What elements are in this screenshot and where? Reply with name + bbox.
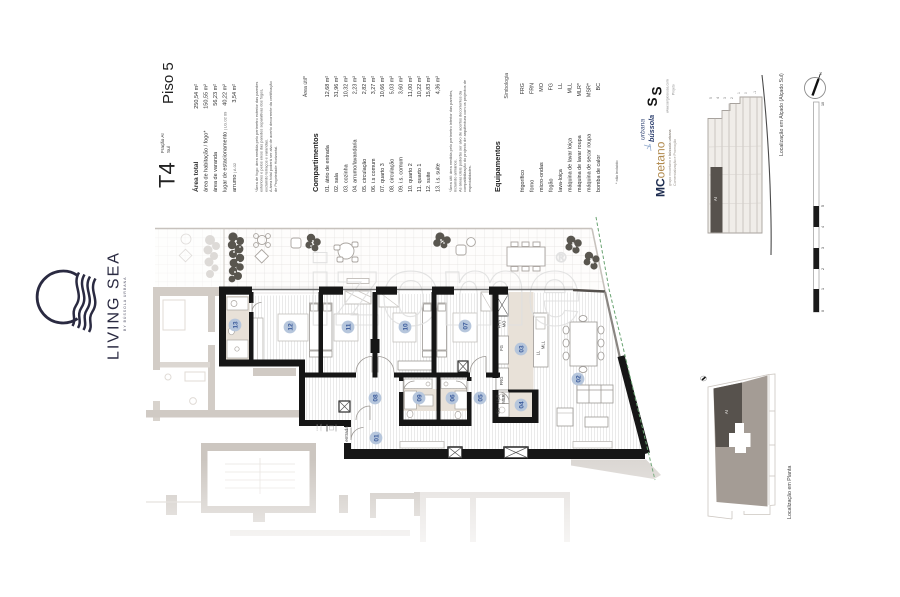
svg-text:especialidades.: especialidades. (467, 165, 472, 192)
svg-text:Projeto: Projeto (672, 84, 676, 95)
svg-text:08: 08 (372, 394, 379, 402)
svg-text:MSR: MSR (501, 394, 506, 403)
svg-text:FRG: FRG (520, 83, 526, 94)
svg-text:3,27 m²: 3,27 m² (371, 76, 377, 94)
svg-text:3,54 m²: 3,54 m² (232, 84, 238, 103)
svg-text:2: 2 (730, 97, 734, 99)
svg-text:FG: FG (549, 83, 555, 91)
svg-text:1: 1 (737, 92, 741, 94)
svg-text:2,82 m²: 2,82 m² (362, 76, 368, 94)
svg-text:31,96 m²: 31,96 m² (334, 76, 340, 97)
svg-text:área de varanda: área de varanda (213, 151, 219, 192)
svg-text:56,23 m²: 56,23 m² (213, 84, 219, 106)
svg-text:BC: BC (496, 408, 501, 414)
svg-text:entrada: entrada (320, 423, 323, 431)
svg-text:MLL: MLL (541, 340, 546, 349)
svg-text:5,03 m²: 5,03 m² (389, 76, 395, 94)
svg-text:3,60 m²: 3,60 m² (399, 76, 405, 94)
svg-text:máquina de lavar roupa: máquina de lavar roupa (577, 135, 583, 192)
svg-text:lava-loiça: lava-loiça (558, 169, 564, 192)
svg-text:Equipamentos: Equipamentos (493, 141, 502, 192)
svg-text:5: 5 (709, 97, 713, 99)
svg-text:1: 1 (821, 288, 825, 290)
svg-text:AI: AI (724, 410, 729, 414)
svg-text:01: 01 (373, 434, 380, 442)
svg-text:Localização em Alçado (Alçado: Localização em Alçado (Alçado Sul) (779, 73, 785, 156)
svg-text:4: 4 (716, 97, 720, 99)
svg-text:S: S (650, 86, 665, 95)
svg-text:09: 09 (416, 394, 423, 402)
svg-text:LL: LL (558, 83, 564, 89)
svg-text:Área total: Área total (191, 161, 200, 192)
svg-text:0: 0 (744, 92, 748, 94)
svg-text:®: ® (556, 249, 567, 265)
svg-text:Simbologia: Simbologia (504, 73, 510, 99)
svg-text:máquina de secar roupa: máquina de secar roupa (587, 134, 593, 192)
svg-text:13. i.s. suite: 13. i.s. suite (435, 163, 441, 192)
svg-text:Sul: Sul (166, 146, 171, 153)
svg-text:40,22 m²: 40,22 m² (223, 84, 229, 106)
svg-text:fogão: fogão (549, 179, 555, 193)
svg-text:3: 3 (723, 97, 727, 99)
svg-text:Comercialização e Promoção: Comercialização e Promoção (673, 139, 677, 186)
svg-text:bomba de calor: bomba de calor (596, 155, 602, 192)
svg-text:4: 4 (821, 226, 825, 228)
svg-text:MSR*: MSR* (587, 82, 593, 97)
svg-text:11. quarto 1: 11. quarto 1 (417, 164, 423, 192)
svg-text:04: 04 (518, 401, 525, 409)
svg-text:250,54 m²: 250,54 m² (194, 84, 200, 109)
svg-text:BC: BC (596, 83, 602, 91)
svg-text:150,55 m²: 150,55 m² (204, 84, 210, 109)
svg-text:10: 10 (821, 102, 825, 106)
svg-text:LL: LL (536, 350, 541, 355)
svg-text:06: 06 (449, 394, 456, 402)
svg-text:urbana: urbana (640, 119, 647, 140)
svg-text:06. i.s comum: 06. i.s comum (371, 158, 377, 192)
svg-text:* não incluído: * não incluído (614, 160, 619, 184)
svg-text:02. sala: 02. sala (334, 173, 340, 192)
svg-text:forno: forno (530, 180, 536, 192)
svg-text:BY BÚSSOLA URBANA: BY BÚSSOLA URBANA (123, 277, 127, 331)
svg-text:Compartimentos: Compartimentos (311, 133, 320, 192)
svg-text:T4: T4 (155, 162, 180, 188)
svg-text:de Propriedade Horizontal.: de Propriedade Horizontal. (273, 146, 278, 192)
svg-text:AI: AI (713, 197, 718, 201)
svg-text:5: 5 (821, 205, 825, 207)
svg-text:0: 0 (821, 310, 825, 312)
svg-text:07. quarto 3: 07. quarto 3 (380, 163, 386, 192)
svg-text:05: 05 (477, 394, 484, 402)
svg-text:bússola: bússola (647, 115, 656, 142)
svg-text:10,22 m²: 10,22 m² (417, 76, 423, 97)
svg-text:FG: FG (499, 345, 504, 351)
svg-text:10: 10 (402, 323, 409, 331)
svg-text:LIVING SEA: LIVING SEA (106, 251, 123, 360)
svg-text:15,83 m²: 15,83 m² (426, 76, 432, 97)
svg-text:01. átrio de entrada: 01. átrio de entrada (325, 145, 331, 192)
svg-text:11: 11 (345, 323, 352, 330)
svg-text:12. suite: 12. suite (426, 172, 432, 192)
svg-text:grupo mcoetano e bússola urban: grupo mcoetano e bússola urbana (668, 128, 672, 186)
svg-text:S: S (645, 97, 660, 106)
svg-text:12: 12 (287, 323, 294, 331)
svg-text:09. i.s. comum: 09. i.s. comum (399, 156, 405, 192)
svg-text:4,36 m²: 4,36 m² (435, 76, 441, 94)
svg-text:N: N (818, 72, 823, 75)
svg-text:-1: -1 (753, 91, 757, 94)
svg-text:entrada: entrada (344, 426, 349, 442)
svg-text:micro-ondas: micro-ondas (539, 162, 545, 192)
svg-text:10. quarto 2: 10. quarto 2 (408, 163, 414, 192)
svg-text:MO: MO (502, 320, 507, 327)
svg-text:07: 07 (462, 322, 469, 330)
svg-text:Fração AI: Fração AI (160, 133, 165, 153)
svg-text:máquina de lavar loiça: máquina de lavar loiça (568, 138, 574, 192)
svg-text:08. circulação: 08. circulação (389, 159, 395, 192)
svg-text:13.936: 13.936 (317, 423, 319, 430)
svg-text:04. arrumo/lavandaria: 04. arrumo/lavandaria (353, 140, 359, 192)
svg-text:FRN: FRN (530, 83, 536, 94)
svg-text:Piso 5: Piso 5 (160, 62, 177, 104)
svg-text:MLR*: MLR* (577, 82, 583, 96)
svg-text:12,68 m²: 12,68 m² (325, 76, 331, 97)
svg-text:MO: MO (539, 83, 545, 92)
svg-text:MLL: MLL (568, 83, 574, 94)
svg-text:05. circulação: 05. circulação (362, 159, 368, 192)
svg-text:11,00 m²: 11,00 m² (408, 76, 414, 97)
svg-text:Área útil*: Área útil* (302, 76, 309, 97)
svg-text:13: 13 (232, 321, 239, 329)
svg-text:3: 3 (821, 247, 825, 249)
svg-text:Localização em Planta: Localização em Planta (787, 466, 793, 519)
svg-text:03: 03 (518, 345, 525, 353)
svg-text:FRG: FRG (499, 377, 504, 386)
svg-text:10,32 m²: 10,32 m² (343, 76, 349, 97)
svg-text:2,23 m²: 2,23 m² (353, 76, 359, 94)
svg-text:2: 2 (821, 268, 825, 270)
svg-text:MLR: MLR (496, 395, 501, 404)
svg-text:10,66 m²: 10,66 m² (380, 76, 386, 97)
svg-text:MCoetano: MCoetano (654, 141, 668, 197)
svg-text:frigorífico: frigorífico (520, 170, 526, 192)
svg-text:03. cozinha: 03. cozinha (343, 164, 349, 192)
svg-text:www.sergiosousa.com: www.sergiosousa.com (666, 79, 670, 113)
svg-text:02: 02 (575, 375, 582, 383)
svg-text:área de habitação / fogo*: área de habitação / fogo* (204, 130, 210, 192)
